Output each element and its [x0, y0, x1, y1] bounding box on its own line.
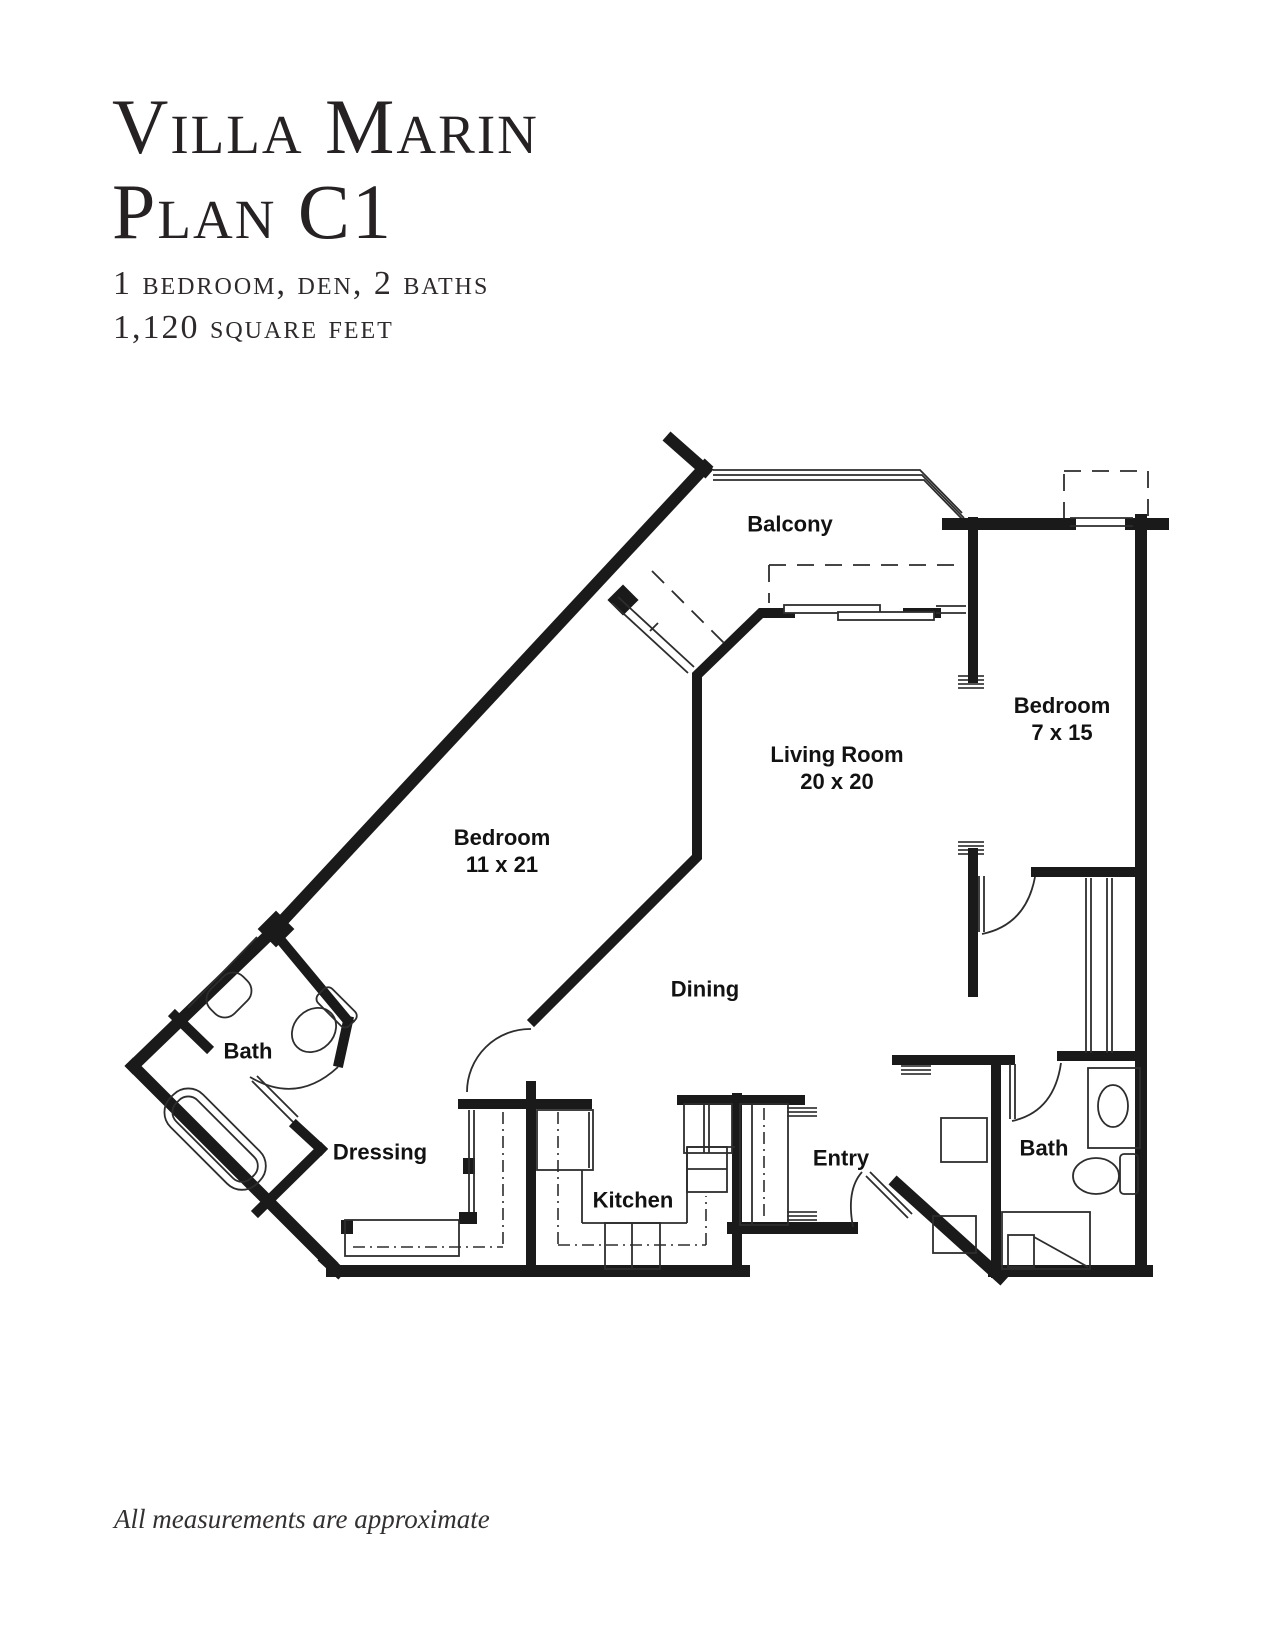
room-label-living-room: Living Room20 x 20 [770, 741, 903, 795]
doors [250, 876, 1061, 1227]
floor-plan-drawing [0, 0, 1275, 1651]
room-label-dressing: Dressing [333, 1139, 427, 1166]
floor-plan-area: BalconyBedroom7 x 15Living Room20 x 20Be… [0, 0, 1275, 1651]
room-label-bath-guest: Bath [1020, 1135, 1069, 1162]
measurements-disclaimer: All measurements are approximate [114, 1504, 490, 1535]
bathtub [156, 1080, 275, 1199]
toilet [1073, 1158, 1119, 1194]
room-dimensions-bedroom-master: 11 x 21 [454, 851, 551, 878]
room-dimensions-living-room: 20 x 20 [770, 768, 903, 795]
sink-counter [1088, 1068, 1140, 1148]
floor-plan-page: Villa Marin Plan C1 1 bedroom, den, 2 ba… [0, 0, 1275, 1651]
room-label-bath-master: Bath [224, 1038, 273, 1065]
room-label-entry: Entry [813, 1145, 869, 1172]
exterior-walls [133, 440, 1163, 1277]
bath-guest-fixtures [1002, 1068, 1140, 1269]
sink [1098, 1085, 1128, 1127]
room-label-balcony: Balcony [747, 511, 833, 538]
room-label-bedroom-den: Bedroom7 x 15 [1014, 692, 1111, 746]
room-label-kitchen: Kitchen [593, 1187, 674, 1214]
room-label-dining: Dining [671, 976, 739, 1003]
bath-master-fixtures [156, 937, 360, 1199]
room-label-bedroom-master: Bedroom11 x 21 [454, 824, 551, 878]
windows-and-sliders [612, 518, 1133, 673]
room-dimensions-bedroom-den: 7 x 15 [1014, 719, 1111, 746]
